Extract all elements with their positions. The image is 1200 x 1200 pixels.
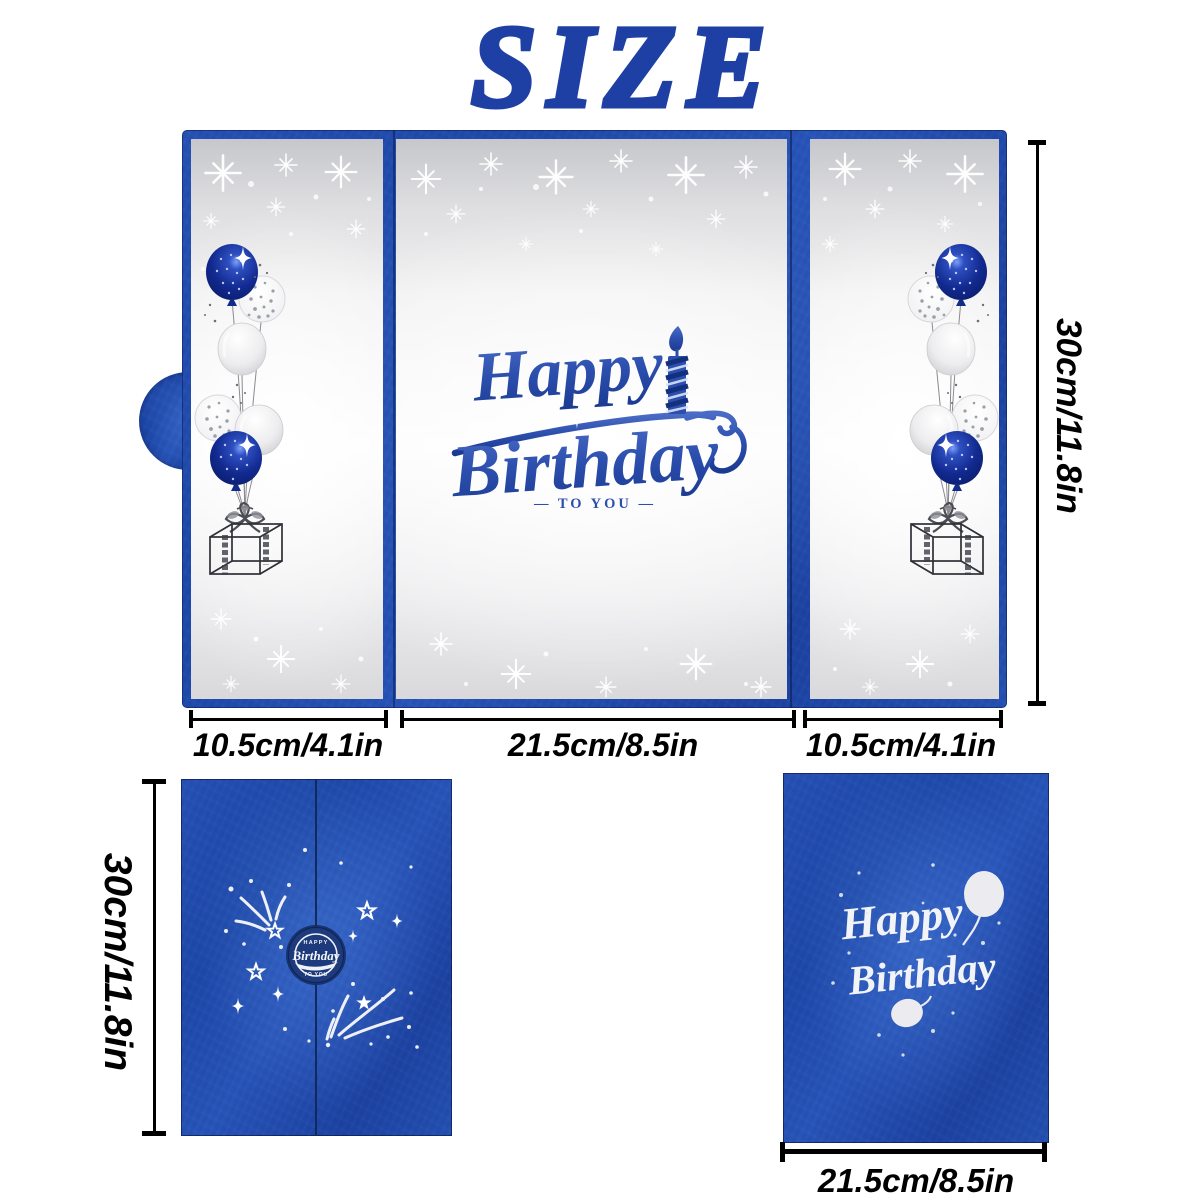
svg-text:HAPPY: HAPPY xyxy=(304,940,329,946)
svg-text:TO YOU: TO YOU xyxy=(304,972,328,978)
svg-text:Birthday: Birthday xyxy=(845,942,999,1003)
svg-text:Happy: Happy xyxy=(469,326,666,416)
svg-text:— TO YOU —: — TO YOU — xyxy=(533,496,656,512)
svg-text:Birthday: Birthday xyxy=(292,948,340,963)
svg-text:Happy: Happy xyxy=(837,887,966,950)
